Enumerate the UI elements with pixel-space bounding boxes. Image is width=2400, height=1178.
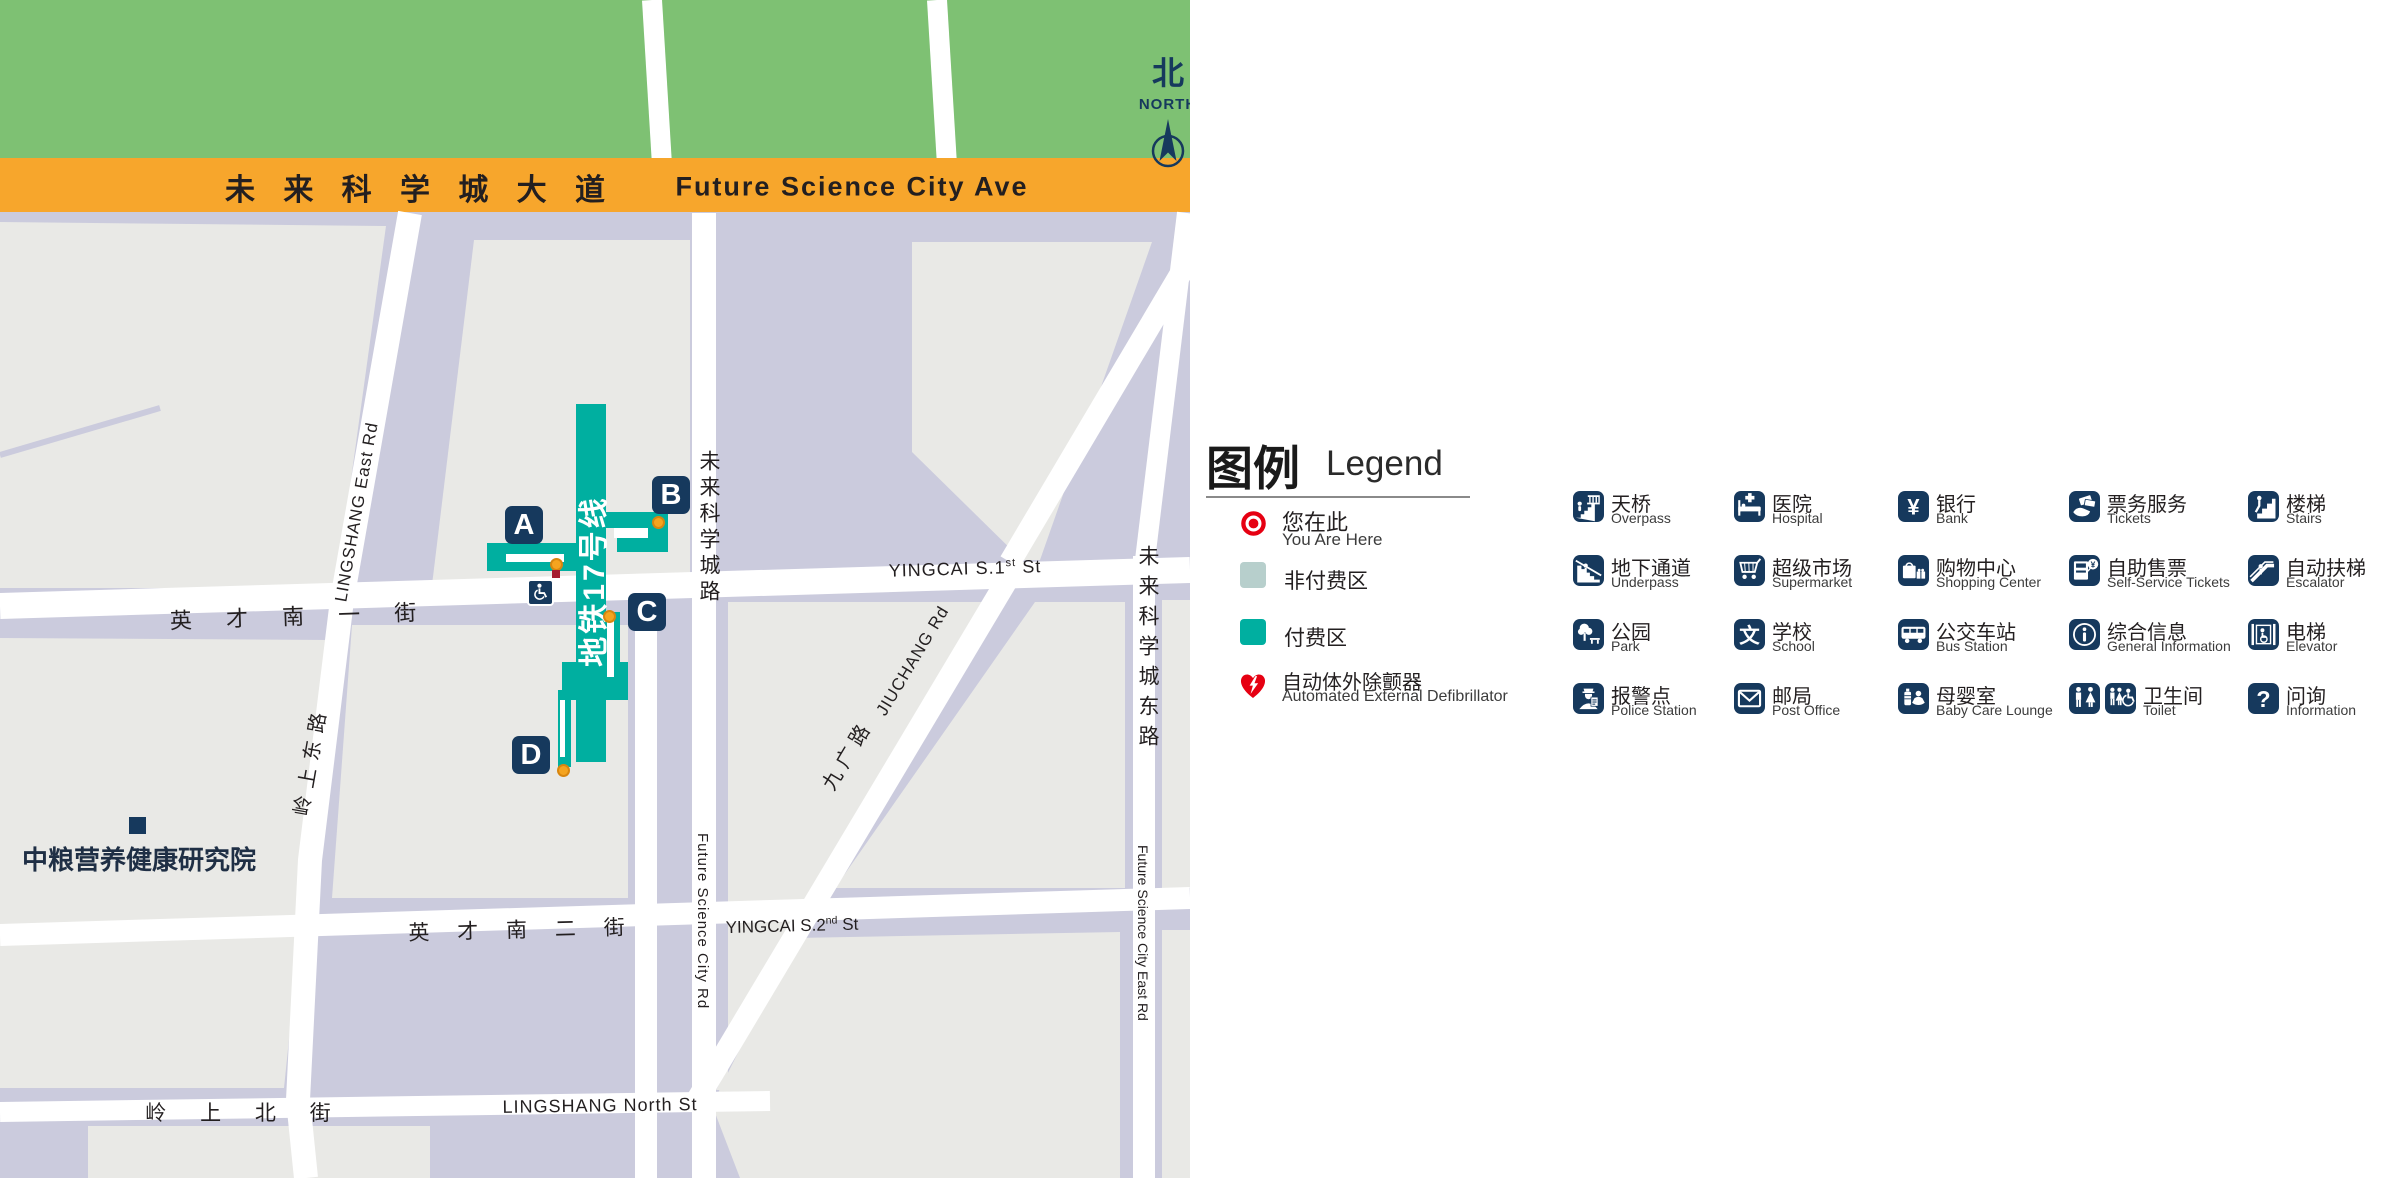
cofco-label: 中粮营养健康研究院 xyxy=(22,840,256,877)
exit-letter: B xyxy=(661,479,682,512)
accessible-toilet-icon xyxy=(2105,683,2136,714)
exit-letter: C xyxy=(637,596,658,629)
walkway-d xyxy=(560,700,565,757)
legend-item-underpass: 地下通道 Underpass xyxy=(1573,555,1743,595)
school-icon xyxy=(1734,619,1765,650)
legend-item-en: Stairs xyxy=(2286,510,2322,526)
bus-station-icon xyxy=(1898,619,1929,650)
legend-item-general-information: 综合信息 General Information xyxy=(2069,619,2239,659)
legend-item-bank: 银行 Bank xyxy=(1898,491,2068,531)
legend-item-park: 公园 Park xyxy=(1573,619,1743,659)
legend-item-en: Bus Station xyxy=(1936,638,2008,654)
underpass-icon xyxy=(1573,555,1604,586)
exit-d-dot xyxy=(557,764,570,777)
exit-b-label: B xyxy=(652,476,690,514)
legend-item-en: Toilet xyxy=(2143,702,2176,718)
exit-b-dot xyxy=(652,516,665,529)
exit-b-passage-3 xyxy=(617,538,668,552)
road-future-east-en: Future Science City East Rd xyxy=(1135,845,1151,1021)
legend-item-en: Post Office xyxy=(1772,702,1840,718)
legend-item-police-station: 报警点 Police Station xyxy=(1573,683,1743,723)
walkway-b xyxy=(614,528,648,538)
unpaid-area-zh: 非付费区 xyxy=(1284,565,1368,595)
aed-en: Automated External Defibrillator xyxy=(1282,688,1508,706)
legend-item-en: Bank xyxy=(1936,510,1968,526)
hospital-icon xyxy=(1734,491,1765,522)
legend-item-en: Police Station xyxy=(1611,702,1697,718)
baby-care-lounge-icon xyxy=(1898,683,1929,714)
road-name-part: St xyxy=(1016,556,1042,577)
legend-item-en: Escalator xyxy=(2286,574,2344,590)
legend-item-toilet: 卫生间 Toilet xyxy=(2069,683,2239,723)
legend-item-en: General Information xyxy=(2107,638,2231,654)
shopping-center-icon xyxy=(1898,555,1929,586)
tickets-icon xyxy=(2069,491,2100,522)
cofco-marker xyxy=(129,817,146,834)
metro-line-label: 地铁17号线 xyxy=(569,456,613,706)
aed-icon xyxy=(1238,670,1268,700)
supermarket-icon xyxy=(1734,555,1765,586)
legend-item-en: Hospital xyxy=(1772,510,1823,526)
general-information-icon xyxy=(2069,619,2100,650)
legend-item-en: Park xyxy=(1611,638,1640,654)
road-name-part: YINGCAI S.1 xyxy=(888,557,1006,580)
police-station-icon xyxy=(1573,683,1604,714)
legend-item-escalator: 自动扶梯 Escalator xyxy=(2248,555,2400,595)
elevator-icon xyxy=(2248,619,2279,650)
legend-title-zh: 图例 xyxy=(1206,430,1300,499)
legend-item-stairs: 楼梯 Stairs xyxy=(2248,491,2400,531)
road-future-rd-zh: 未来科学城路 xyxy=(693,450,723,606)
legend-item-school: 学校 School xyxy=(1734,619,1904,659)
escalator-icon xyxy=(2248,555,2279,586)
toilet-icon xyxy=(2069,683,2100,714)
wheelchair-elevator-icon xyxy=(527,579,554,606)
legend-item-tickets: 票务服务 Tickets xyxy=(2069,491,2239,531)
legend-item-supermarket: 超级市场 Supermarket xyxy=(1734,555,1904,595)
legend-item-en: Self-Service Tickets xyxy=(2107,574,2230,590)
unpaid-area-swatch xyxy=(1240,562,1266,588)
exit-c-dot xyxy=(603,610,616,623)
exit-letter: D xyxy=(521,739,542,772)
avenue-label-en: Future Science City Ave xyxy=(675,172,1028,203)
information-icon xyxy=(2248,683,2279,714)
road-name-sup: nd xyxy=(826,914,838,926)
road-yingcai-s2-zh: 英 才 南 二 街 xyxy=(408,911,636,947)
legend-title-en: Legend xyxy=(1326,444,1443,484)
legend-item-en: School xyxy=(1772,638,1815,654)
exit-a-label: A xyxy=(505,506,543,544)
exit-d-label: D xyxy=(512,736,550,774)
self-service-tickets-icon xyxy=(2069,555,2100,586)
legend-item-hospital: 医院 Hospital xyxy=(1734,491,1904,531)
aed-marker xyxy=(552,570,560,578)
legend-item-en: Information xyxy=(2286,702,2356,718)
paid-area-zh: 付费区 xyxy=(1284,622,1347,652)
legend-item-en: Baby Care Lounge xyxy=(1936,702,2053,718)
park-icon xyxy=(1573,619,1604,650)
bank-icon xyxy=(1898,491,1929,522)
road-future-rd-en: Future Science City Rd xyxy=(694,833,711,1009)
exit-letter: A xyxy=(514,509,535,542)
road-yingcai-s2-en: YINGCAI S.2nd St xyxy=(725,914,858,938)
road-name-part: St xyxy=(837,915,858,935)
exit-c-label: C xyxy=(628,593,666,631)
road-future-east-zh: 未来科学城东路 xyxy=(1132,545,1162,755)
legend-item-en: Elevator xyxy=(2286,638,2337,654)
station-vicinity-sign: 地铁17号线 A B C D 未 来 科 学 城 大 道 Future Scie… xyxy=(0,0,2400,1178)
you-are-here-icon xyxy=(1240,510,1267,537)
legend-item-shopping-center: 购物中心 Shopping Center xyxy=(1898,555,2068,595)
legend-item-en: Underpass xyxy=(1611,574,1679,590)
stairs-icon xyxy=(2248,491,2279,522)
legend-item-elevator: 电梯 Elevator xyxy=(2248,619,2400,659)
road-name-part: YINGCAI S.2 xyxy=(725,915,826,937)
legend-item-information: 问询 Information xyxy=(2248,683,2400,723)
avenue-label-zh: 未 来 科 学 城 大 道 xyxy=(225,165,615,209)
paid-area-swatch xyxy=(1240,619,1266,645)
road-name-sup: st xyxy=(1005,557,1016,569)
you-are-here-en: You Are Here xyxy=(1282,530,1383,550)
legend-item-post-office: 邮局 Post Office xyxy=(1734,683,1904,723)
road-lingshang-north-en: LINGSHANG North St xyxy=(502,1094,697,1118)
post-office-icon xyxy=(1734,683,1765,714)
overpass-icon xyxy=(1573,491,1604,522)
north-label-zh: 北 xyxy=(1138,48,1190,94)
legend-item-en: Shopping Center xyxy=(1936,574,2041,590)
legend-item-baby-care-lounge: 母婴室 Baby Care Lounge xyxy=(1898,683,2068,723)
vicinity-map: 地铁17号线 A B C D 未 来 科 学 城 大 道 Future Scie… xyxy=(0,0,1190,1178)
road-lingshang-north-zh: 岭 上 北 街 xyxy=(145,1097,345,1127)
legend-underline xyxy=(1206,496,1470,498)
north-indicator: 北 NORTH xyxy=(1138,48,1190,176)
legend-item-en: Supermarket xyxy=(1772,574,1852,590)
legend-item-self-service-tickets: 自助售票 Self-Service Tickets xyxy=(2069,555,2239,595)
legend-item-en: Overpass xyxy=(1611,510,1671,526)
north-label-en: NORTH xyxy=(1138,96,1190,113)
compass-icon xyxy=(1144,115,1190,171)
legend-item-overpass: 天桥 Overpass xyxy=(1573,491,1743,531)
legend-item-bus-station: 公交车站 Bus Station xyxy=(1898,619,2068,659)
legend-item-en: Tickets xyxy=(2107,510,2151,526)
